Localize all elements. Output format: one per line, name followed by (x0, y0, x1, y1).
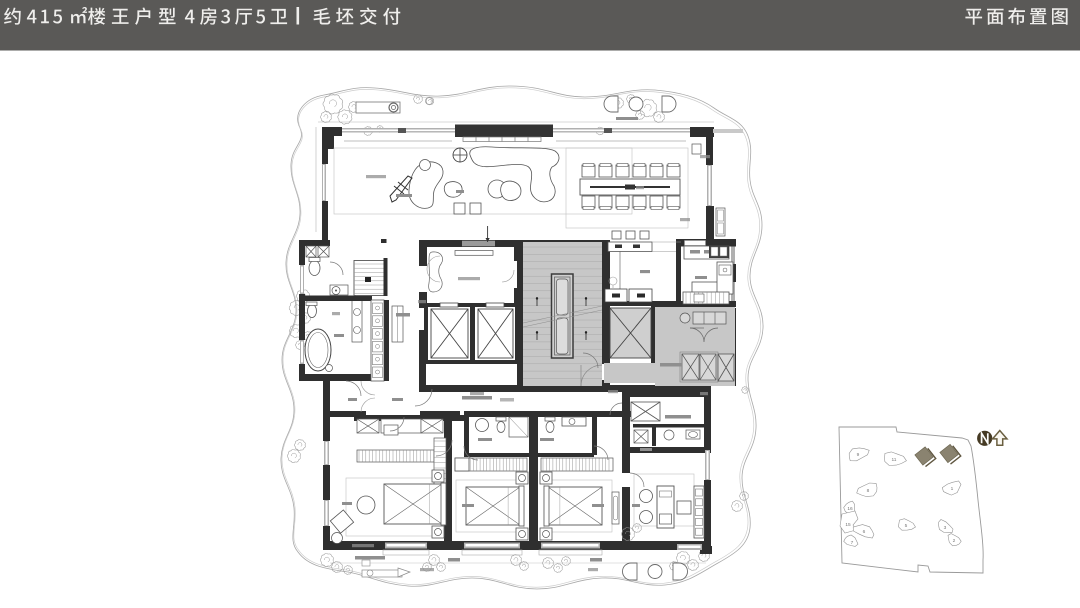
svg-text:7: 7 (851, 540, 854, 546)
svg-text:3: 3 (944, 525, 947, 531)
svg-text:8: 8 (867, 488, 870, 494)
svg-text:2: 2 (953, 538, 956, 544)
svg-text:15: 15 (845, 522, 851, 528)
svg-text:1: 1 (951, 486, 954, 492)
svg-text:16: 16 (847, 506, 853, 512)
svg-text:11: 11 (892, 457, 897, 463)
svg-text:6: 6 (863, 529, 866, 535)
svg-text:5: 5 (905, 523, 908, 529)
svg-text:9: 9 (857, 452, 860, 458)
